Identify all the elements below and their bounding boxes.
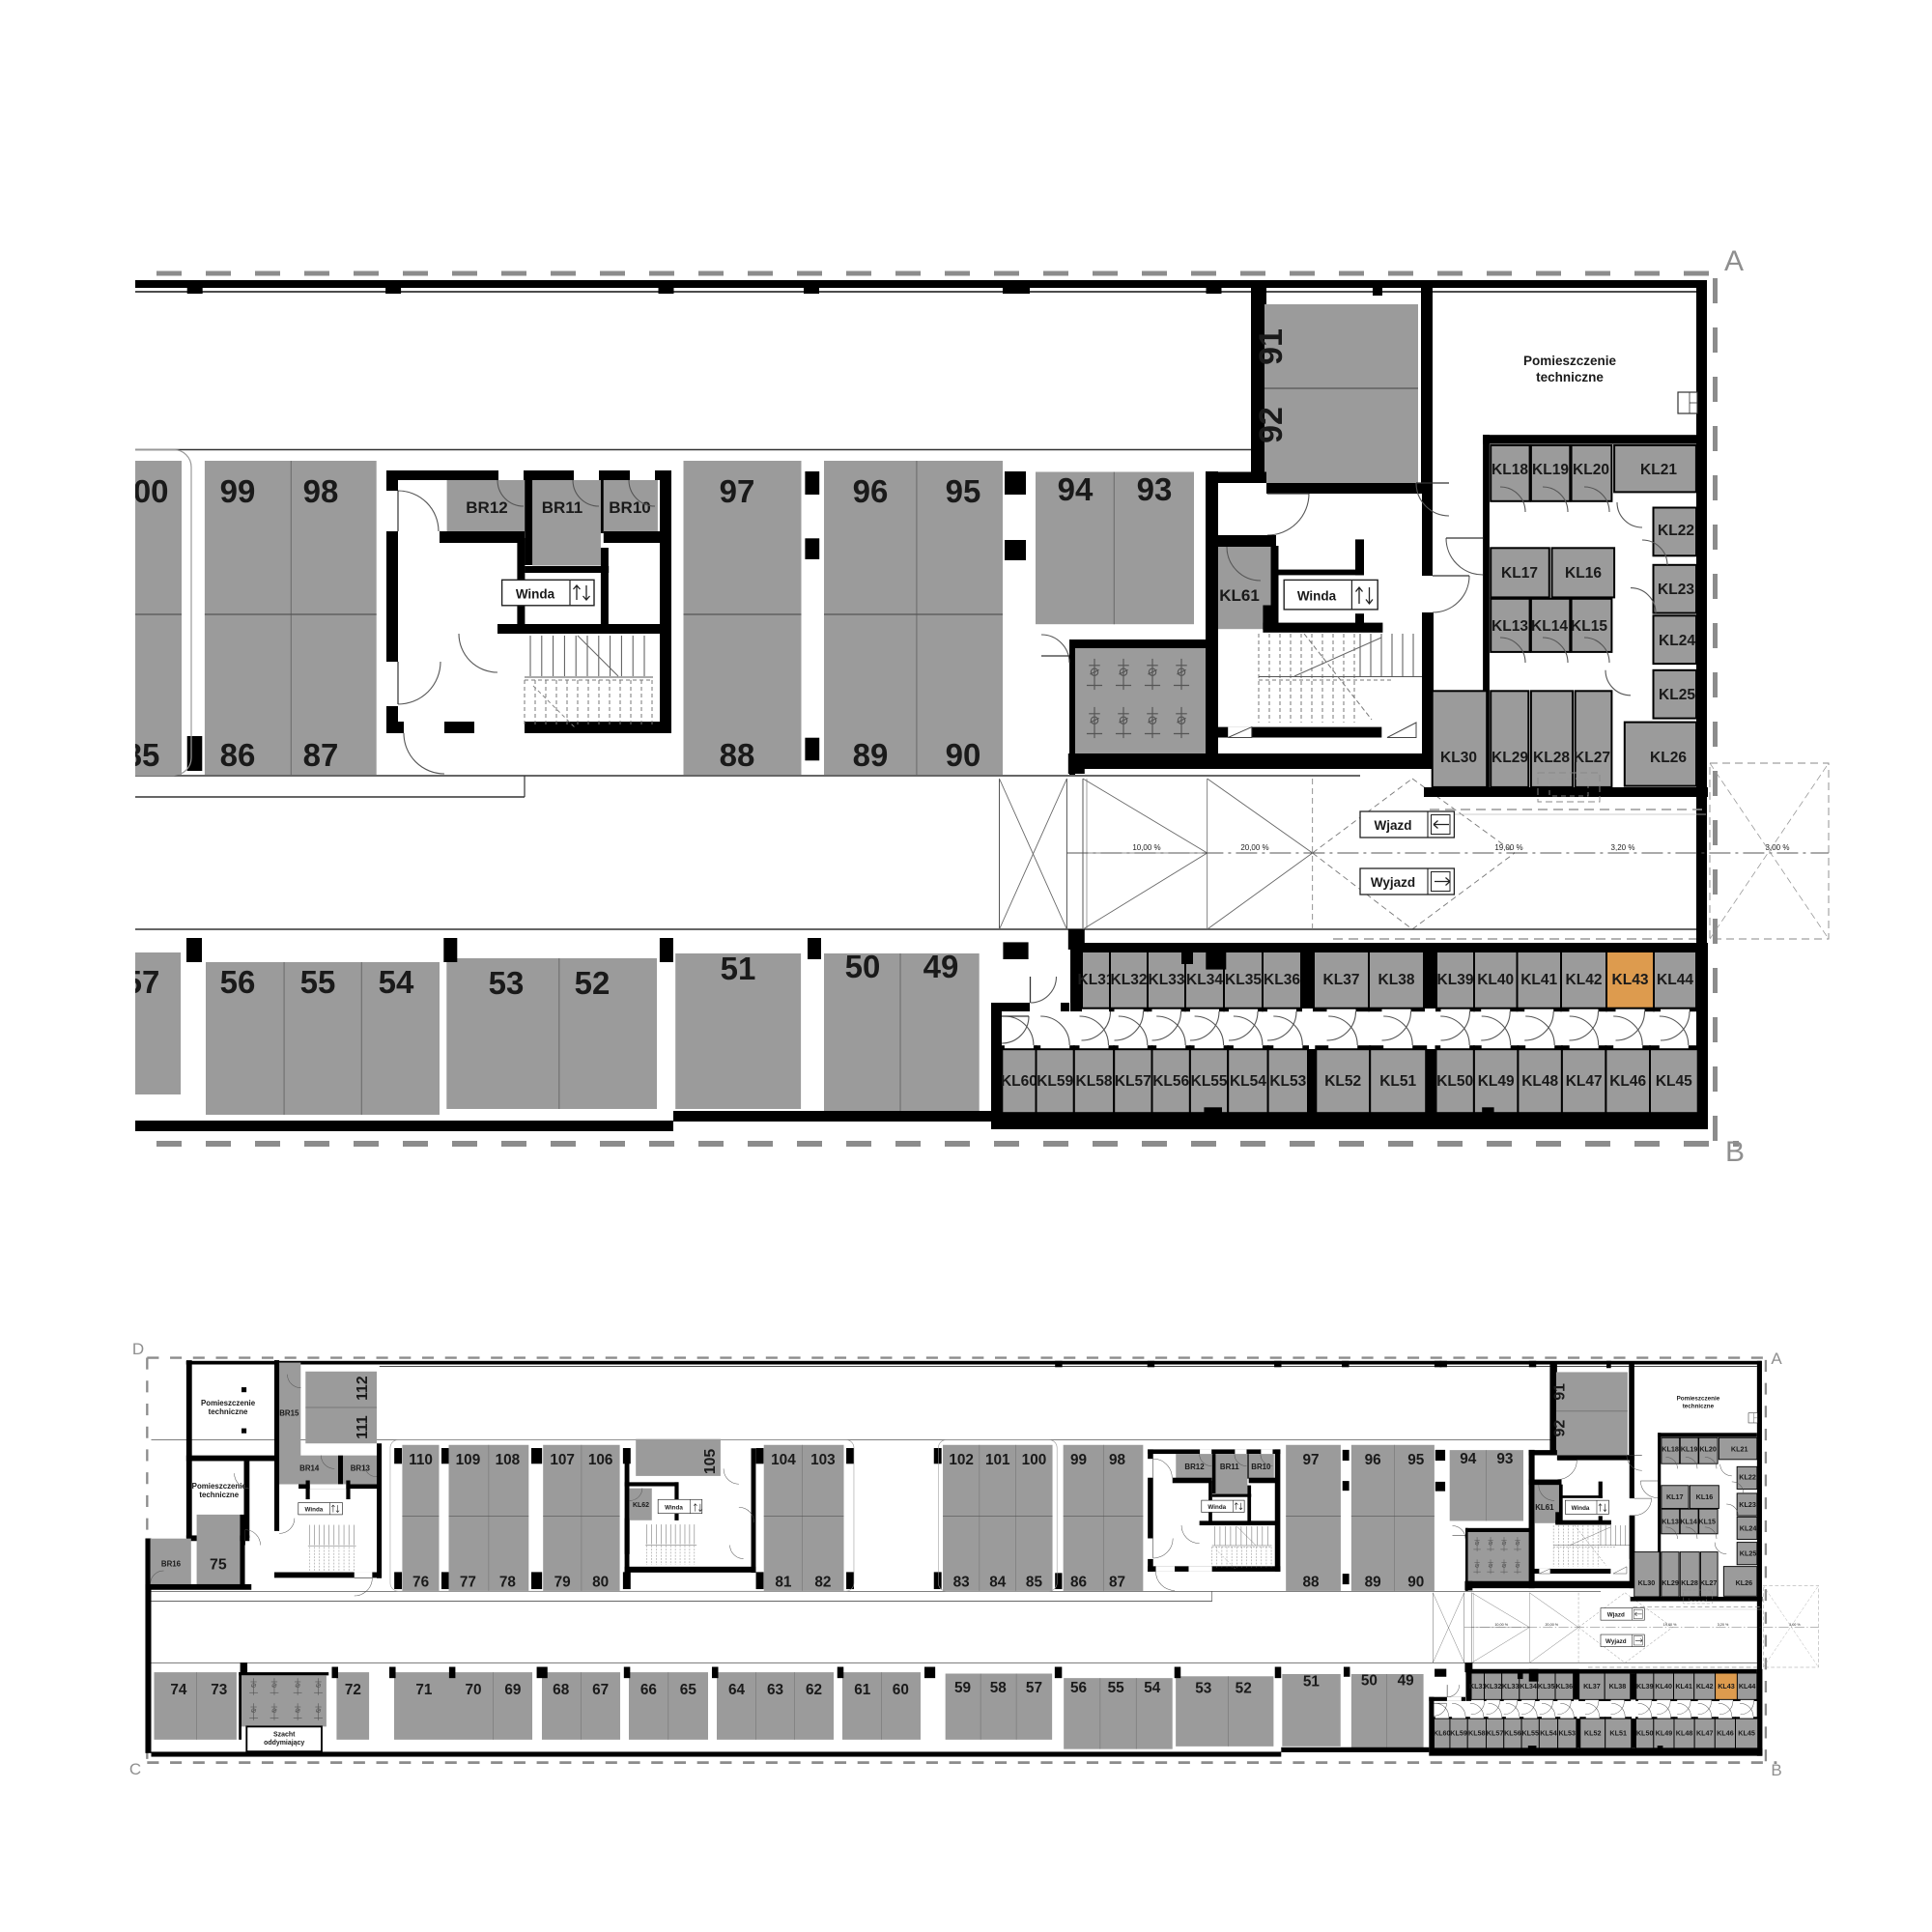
svg-text:C: C (129, 1760, 141, 1778)
svg-text:D: D (132, 1340, 144, 1358)
svg-text:B: B (1771, 1761, 1781, 1779)
svg-text:A: A (1724, 245, 1744, 277)
svg-text:B: B (1725, 1136, 1745, 1168)
svg-text:A: A (1771, 1350, 1782, 1368)
